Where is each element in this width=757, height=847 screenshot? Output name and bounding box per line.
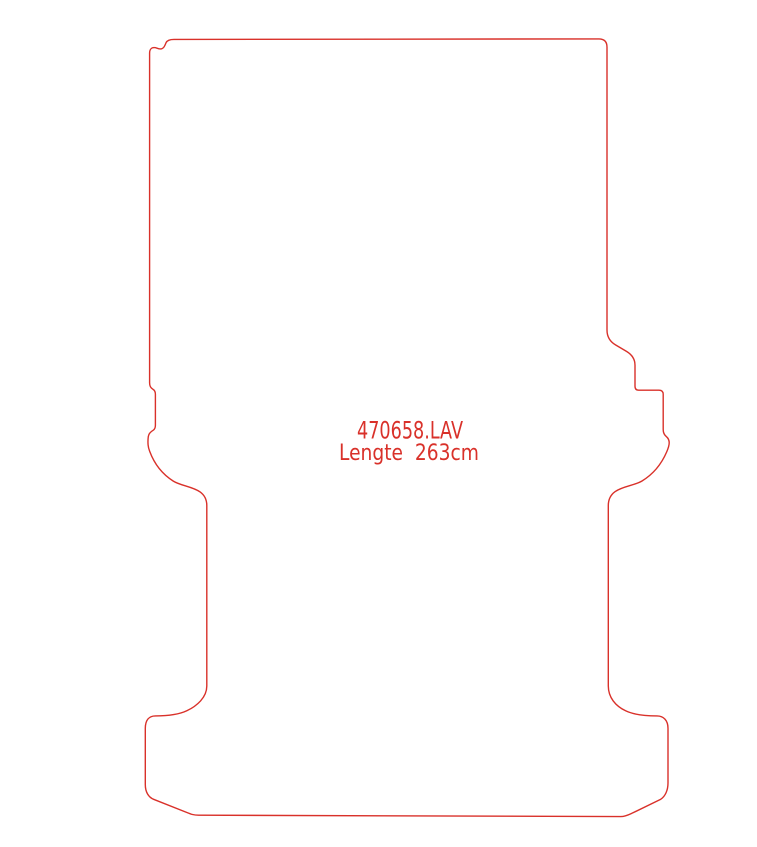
- length-label: Lengte 263cm: [339, 441, 479, 466]
- drawing-canvas: 470658.LAV Lengte 263cm: [0, 0, 757, 847]
- floor-mat-outline-drawing: 470658.LAV Lengte 263cm: [0, 0, 757, 847]
